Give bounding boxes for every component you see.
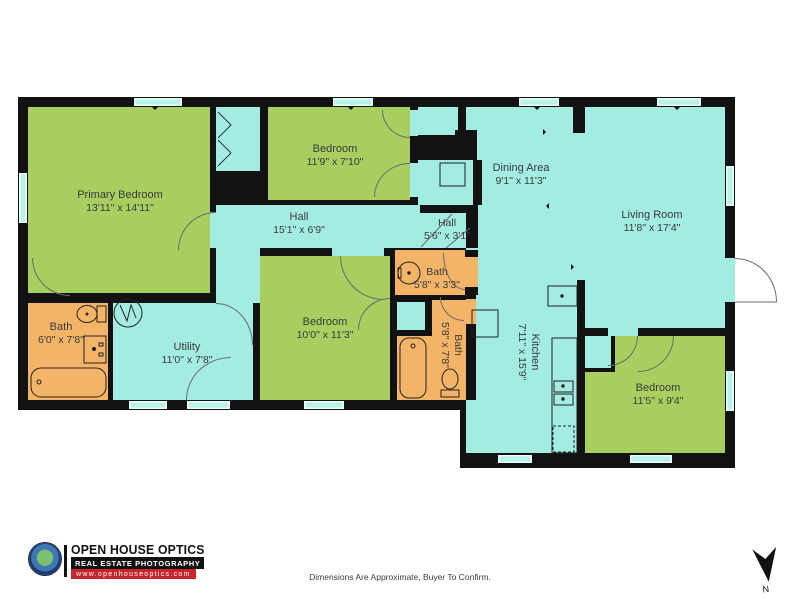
sink-vanity-icon — [84, 336, 106, 363]
room-label-bath-left: Bath6'0" x 7'8" — [38, 321, 84, 347]
tick — [348, 107, 354, 110]
toilet-vertical-icon — [441, 369, 459, 397]
bifold-door-icon — [218, 112, 231, 166]
room-label-kitchen: Kitchen7'11" x 15'9" — [515, 324, 541, 381]
room-label-bath-small: Bath5'8" x 3'3" — [414, 266, 460, 292]
room-label-bedroom-bottom: Bedroom11'5" x 9'4" — [633, 382, 684, 408]
logo-divider — [64, 545, 67, 577]
room-label-bedroom-top: Bedroom11'9" x 7'10" — [307, 143, 364, 169]
room-label-primary-bedroom: Primary Bedroom13'11" x 14'11" — [77, 189, 163, 215]
room-label-bath-vertical: Bath5'8" x 7'8" — [438, 322, 464, 368]
closet-shelf-icon — [440, 163, 465, 186]
water-heater-icon — [114, 299, 142, 327]
floor-plan-page: N Primary Bedroom13'11" x 14'11" Bedroom… — [0, 0, 800, 600]
room-label-hall-small: Hall5'6" x 3'1" — [424, 217, 470, 243]
tick — [534, 107, 540, 110]
tick — [674, 107, 680, 110]
room-label-bedroom-middle: Bedroom10'0" x 11'3" — [297, 316, 354, 342]
fixtures-layer: N — [0, 0, 800, 600]
north-arrow: N — [752, 547, 781, 595]
tick — [571, 264, 574, 270]
company-logo-badge — [29, 543, 61, 575]
room-label-living: Living Room11'8" x 17'4" — [621, 209, 682, 235]
company-tagline: REAL ESTATE PHOTOGRAPHY — [71, 557, 204, 569]
tick — [546, 203, 549, 209]
room-label-utility: Utility11'0" x 7'8" — [162, 341, 213, 367]
disclaimer-text: Dimensions Are Approximate, Buyer To Con… — [200, 572, 600, 582]
tick — [152, 107, 158, 110]
company-website: www.openhouseoptics.com — [71, 569, 196, 579]
bathtub-icon — [31, 368, 106, 397]
company-name: OPEN HOUSE OPTICS — [71, 542, 205, 557]
tick — [543, 129, 546, 135]
north-label: N — [762, 584, 770, 595]
toilet-icon — [77, 306, 106, 323]
bathtub-vertical-icon — [400, 338, 426, 398]
room-label-hall: Hall15'1" x 6'9" — [273, 211, 325, 237]
room-label-dining: Dining Area9'1" x 11'3" — [493, 162, 550, 188]
